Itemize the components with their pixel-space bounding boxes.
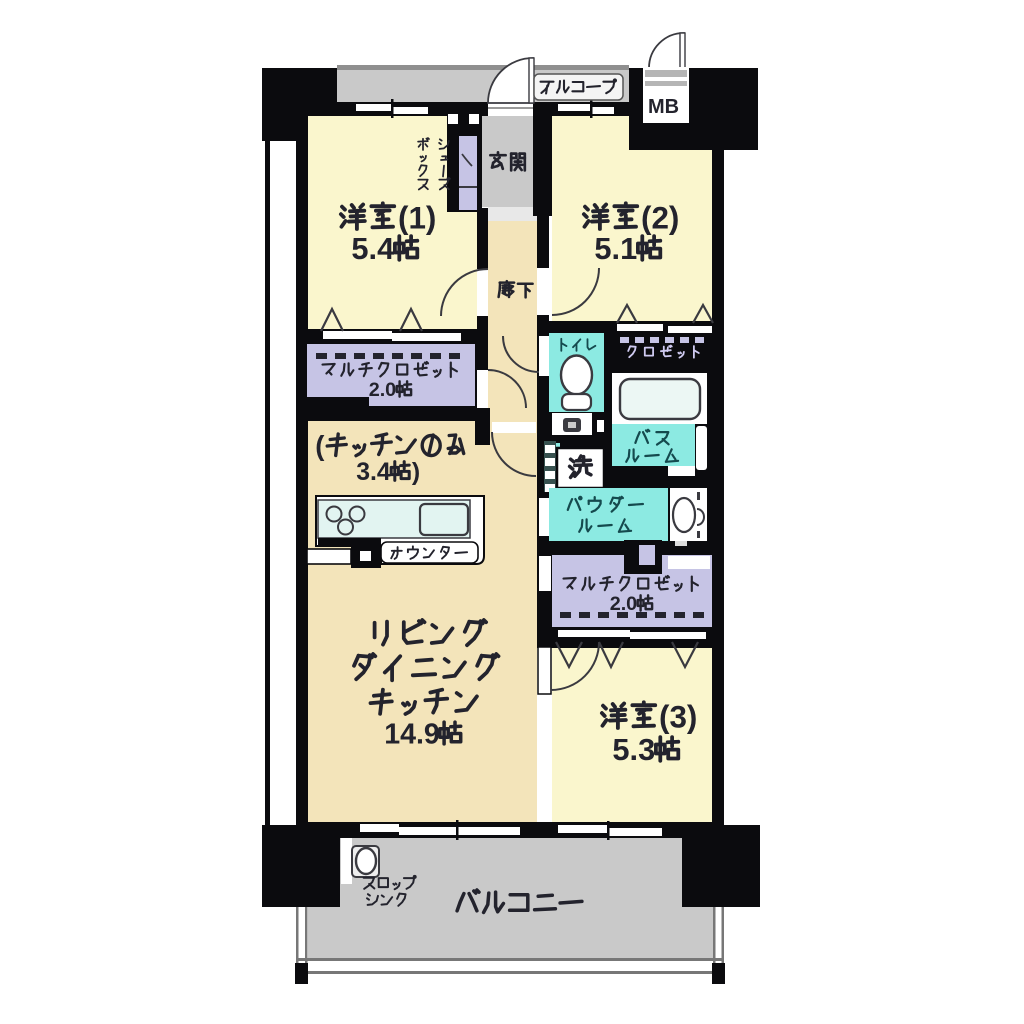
svg-text:(: ( <box>315 430 325 461</box>
svg-text:): ) <box>412 459 420 486</box>
svg-text:5.4: 5.4 <box>351 231 394 266</box>
svg-text:MB: MB <box>648 96 679 118</box>
svg-text:5.1: 5.1 <box>594 231 637 266</box>
svg-text:2.0: 2.0 <box>610 593 638 615</box>
svg-text:3.4: 3.4 <box>356 459 391 486</box>
svg-text:(3): (3) <box>659 699 697 734</box>
svg-text:14.9: 14.9 <box>384 718 440 750</box>
svg-text:5.3: 5.3 <box>612 732 655 767</box>
svg-text:2.0: 2.0 <box>369 379 397 401</box>
svg-text:(1): (1) <box>398 200 436 235</box>
svg-text:(2): (2) <box>641 200 679 235</box>
